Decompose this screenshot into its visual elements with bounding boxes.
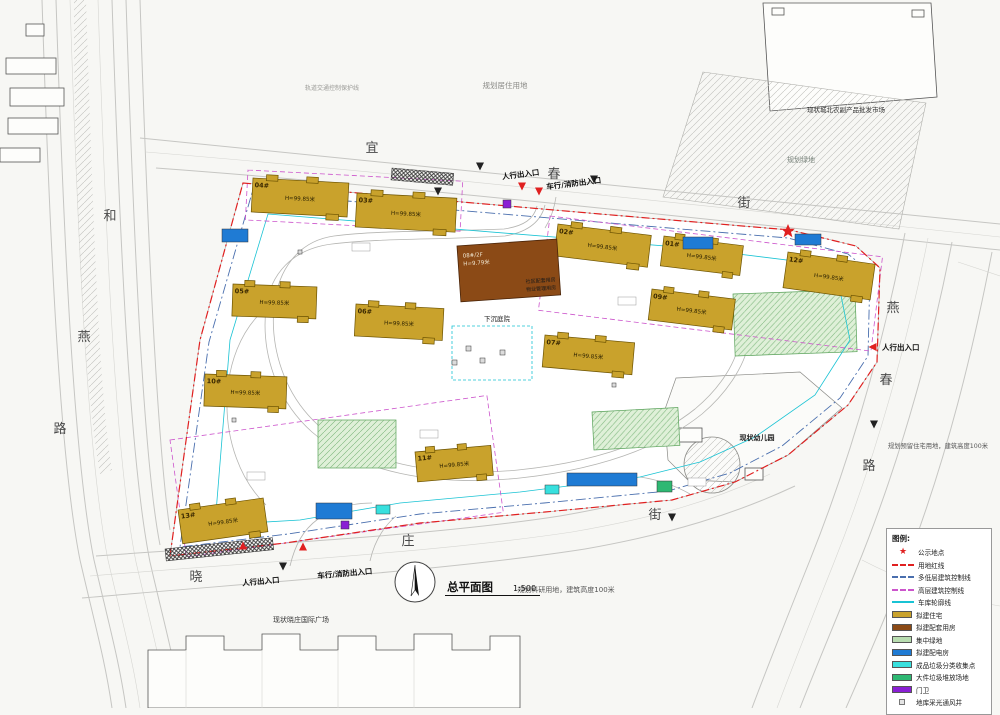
- street-name-char: 街: [648, 508, 661, 523]
- street-name-char: 燕: [886, 301, 899, 316]
- building-number: 11#: [417, 454, 432, 463]
- power-room: [795, 234, 821, 245]
- power-room: [683, 237, 713, 249]
- residential-building: 05#H=99.85米: [232, 280, 317, 323]
- legend-item-label: 车库轮廓线: [918, 597, 951, 607]
- plaza-building: [148, 634, 520, 708]
- vent-shaft: [452, 360, 457, 365]
- street-name-char: 路: [862, 458, 875, 474]
- legend-swatch: [892, 686, 912, 693]
- street-name-char: 春: [547, 167, 560, 182]
- legend-line-sample: [892, 589, 914, 591]
- legend-item: 集中绿地: [892, 634, 986, 647]
- vent-shaft: [466, 346, 471, 351]
- exit-marker: [870, 421, 878, 429]
- exit-marker: [668, 514, 676, 522]
- street-name-char: 晓: [189, 570, 202, 585]
- entrance-label: 人行出入口: [882, 342, 920, 352]
- entrance-arrow: [535, 188, 543, 196]
- plaza-label: 现状晓庄国际广场: [273, 615, 329, 624]
- street-name-char: 燕: [77, 330, 90, 345]
- legend-item-label: 用地红线: [918, 560, 944, 570]
- service-building: 08#/2FH=9.79米社区配套用房物业管理用房: [457, 239, 561, 302]
- legend-item-label: 集中绿地: [916, 635, 942, 645]
- legend-item-label: 公示地点: [918, 547, 944, 557]
- planned-residential-label: 规划居住用地: [483, 80, 528, 90]
- legend-line-sample: [892, 601, 914, 603]
- street-name-char: 春: [879, 373, 892, 388]
- guard-house: [503, 200, 511, 208]
- legend-item: 拟建配电房: [892, 646, 986, 659]
- street-name-char: 宜: [365, 141, 378, 156]
- vent-shaft: [298, 250, 302, 254]
- legend-item-label: 高层建筑控制线: [918, 585, 964, 595]
- legend-swatch: [892, 649, 912, 656]
- building-number: 07#: [546, 338, 561, 347]
- legend-item: 大件垃圾堆放场地: [892, 671, 986, 684]
- vent-shaft: [232, 418, 236, 422]
- entrance-arrow: [299, 543, 307, 551]
- legend-swatch: [892, 636, 912, 643]
- vent-shaft: [500, 350, 505, 355]
- exit-marker: [476, 163, 484, 171]
- building-number: 05#: [235, 287, 250, 296]
- kindergarten-label: 现状幼儿园: [740, 433, 775, 442]
- site-area: [170, 183, 880, 556]
- recycling-point: [545, 485, 559, 494]
- legend-item-label: 拟建配套用房: [916, 622, 956, 632]
- legend-item-label: 大件垃圾堆放场地: [916, 672, 969, 682]
- planned-green-label: 规划绿地: [787, 155, 815, 164]
- legend-item-label: 拟建配电房: [916, 647, 949, 657]
- plan-scale: 1:500: [513, 584, 536, 593]
- site-plan-page: { "title": {"label": "总平面图", "scale": "1…: [0, 0, 1000, 708]
- legend-line-sample: [892, 564, 914, 566]
- legend-item-label: 多低层建筑控制线: [918, 572, 971, 582]
- street-name-char: 庄: [401, 533, 414, 549]
- legend-swatch: [892, 611, 912, 618]
- hatched-strip: [391, 168, 454, 185]
- legend-item-label: 拟建住宅: [916, 610, 942, 620]
- legend-item-label: 地库采光通风井: [916, 697, 962, 707]
- north-arrow: [395, 562, 435, 602]
- legend-swatch: [892, 661, 912, 668]
- street-name-char: 路: [53, 421, 66, 437]
- power-room: [316, 503, 352, 519]
- legend-swatch: [892, 624, 912, 631]
- entrance-label: 车行/消防出入口: [317, 566, 373, 581]
- legend-item: 用地红线: [892, 559, 986, 572]
- plan-title: 总平面图: [447, 580, 493, 594]
- guard-house: [341, 521, 349, 529]
- legend-item: 高层建筑控制线: [892, 584, 986, 597]
- legend-title: 图例:: [892, 533, 986, 544]
- sunken-courtyard-label: 下沉庭院: [484, 314, 511, 323]
- legend-item: ★公示地点: [892, 546, 986, 559]
- recycling-point: [376, 505, 390, 514]
- master-plan-drawing: 04#H=99.85米03#H=99.85米02#H=99.85米01#H=99…: [0, 0, 1000, 708]
- legend-item: 拟建住宅: [892, 609, 986, 622]
- reserved-land-label: 规划预留住宅用地，建筑高度100米: [888, 441, 989, 450]
- legend: 图例: ★公示地点用地红线多低层建筑控制线高层建筑控制线车库轮廓线拟建住宅拟建配…: [886, 528, 992, 715]
- legend-item: 车库轮廓线: [892, 596, 986, 609]
- vent-shaft: [480, 358, 485, 363]
- exit-marker: [279, 563, 287, 571]
- entrance-label: 人行出入口: [242, 574, 280, 587]
- power-room: [222, 229, 248, 242]
- legend-item: 门卫: [892, 684, 986, 697]
- legend-line-sample: [892, 576, 914, 578]
- street-name-char: 和: [103, 209, 116, 224]
- legend-item: 多低层建筑控制线: [892, 571, 986, 584]
- power-room: [567, 473, 637, 486]
- legend-swatch: [899, 699, 905, 705]
- market-label: 现状城北农副产品批发市场: [807, 105, 886, 114]
- building-number: 06#: [357, 307, 372, 316]
- building-number: 04#: [254, 181, 269, 190]
- legend-item: 地库采光通风井: [892, 696, 986, 709]
- bulky-waste-area: [657, 481, 672, 492]
- legend-swatch: [892, 674, 912, 681]
- legend-item: 拟建配套用房: [892, 621, 986, 634]
- street-name-char: 街: [737, 196, 750, 211]
- road-median-hatch: [74, 0, 112, 474]
- legend-star-icon: ★: [892, 548, 914, 557]
- development-site: [165, 168, 883, 566]
- residential-building: 10#H=99.85米: [204, 370, 287, 413]
- entrance-label: 人行出入口: [501, 167, 539, 181]
- vent-shaft: [612, 383, 616, 387]
- building-number: 10#: [207, 377, 222, 386]
- legend-item-label: 门卫: [916, 685, 929, 695]
- legend-item-label: 成品垃圾分类收集点: [916, 660, 975, 670]
- building-number: 03#: [358, 196, 373, 205]
- legend-item: 成品垃圾分类收集点: [892, 659, 986, 672]
- rail-protection-label: 轨道交通控制保护线: [305, 84, 359, 92]
